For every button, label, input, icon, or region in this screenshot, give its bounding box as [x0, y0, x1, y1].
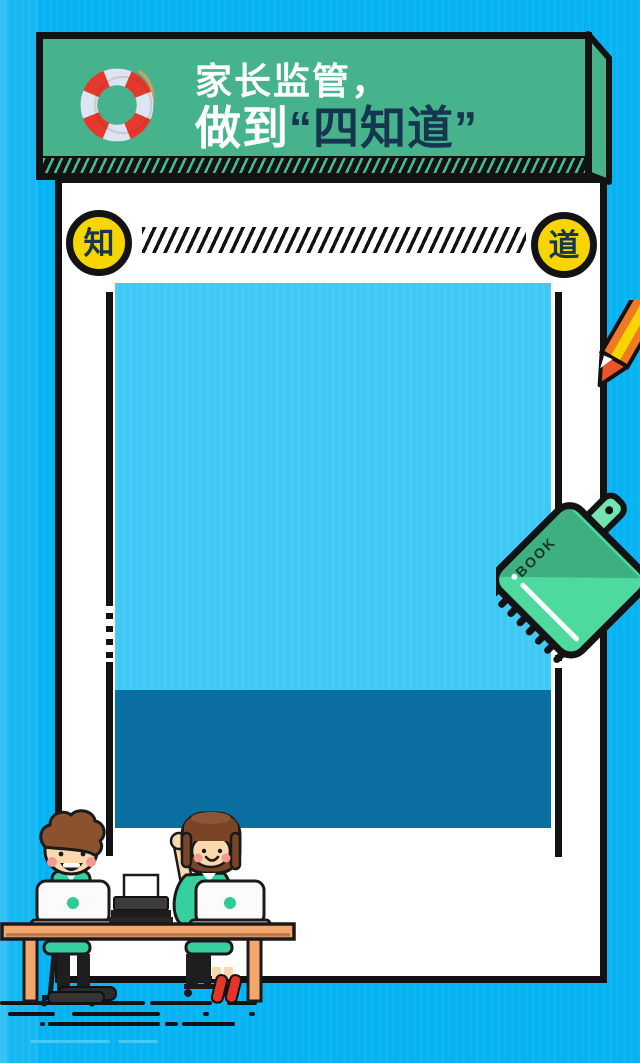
badge-dao: 道 — [531, 212, 597, 278]
banner-title-line2-prefix: 做到 — [195, 102, 289, 154]
printer — [107, 875, 175, 929]
left-border-line-dotted — [106, 600, 113, 662]
left-border-line-top — [106, 292, 113, 600]
girl-legs — [186, 954, 242, 1004]
image-placeholder-main — [115, 283, 551, 690]
girl-laptop — [190, 881, 270, 928]
poster-background: 家长监管， 做到“四知道” 知 道 — [0, 0, 640, 1063]
banner-title-line2: 做到“四知道” — [195, 104, 585, 154]
banner-title: 家长监管， 做到“四知道” — [195, 61, 585, 153]
desk — [2, 924, 294, 1001]
boy-legs — [48, 954, 116, 1003]
right-border-line-bottom — [555, 670, 562, 857]
pencil-icon — [594, 300, 640, 410]
banner-title-line1: 家长监管， — [195, 61, 585, 104]
lifebuoy-icon — [65, 53, 169, 157]
boy-laptop — [31, 881, 115, 928]
children-at-desks-illustration — [0, 805, 330, 1063]
banner-title-line2-accent: “四知道” — [289, 102, 478, 154]
notebook-icon: BOOK — [496, 476, 640, 686]
ground-dashes — [0, 1001, 257, 1043]
banner: 家长监管， 做到“四知道” — [36, 32, 592, 180]
banner-hatched-edge — [43, 156, 585, 173]
divider-hatch-line — [142, 227, 526, 253]
boy-hair — [41, 811, 104, 855]
badge-zhi: 知 — [66, 210, 132, 276]
